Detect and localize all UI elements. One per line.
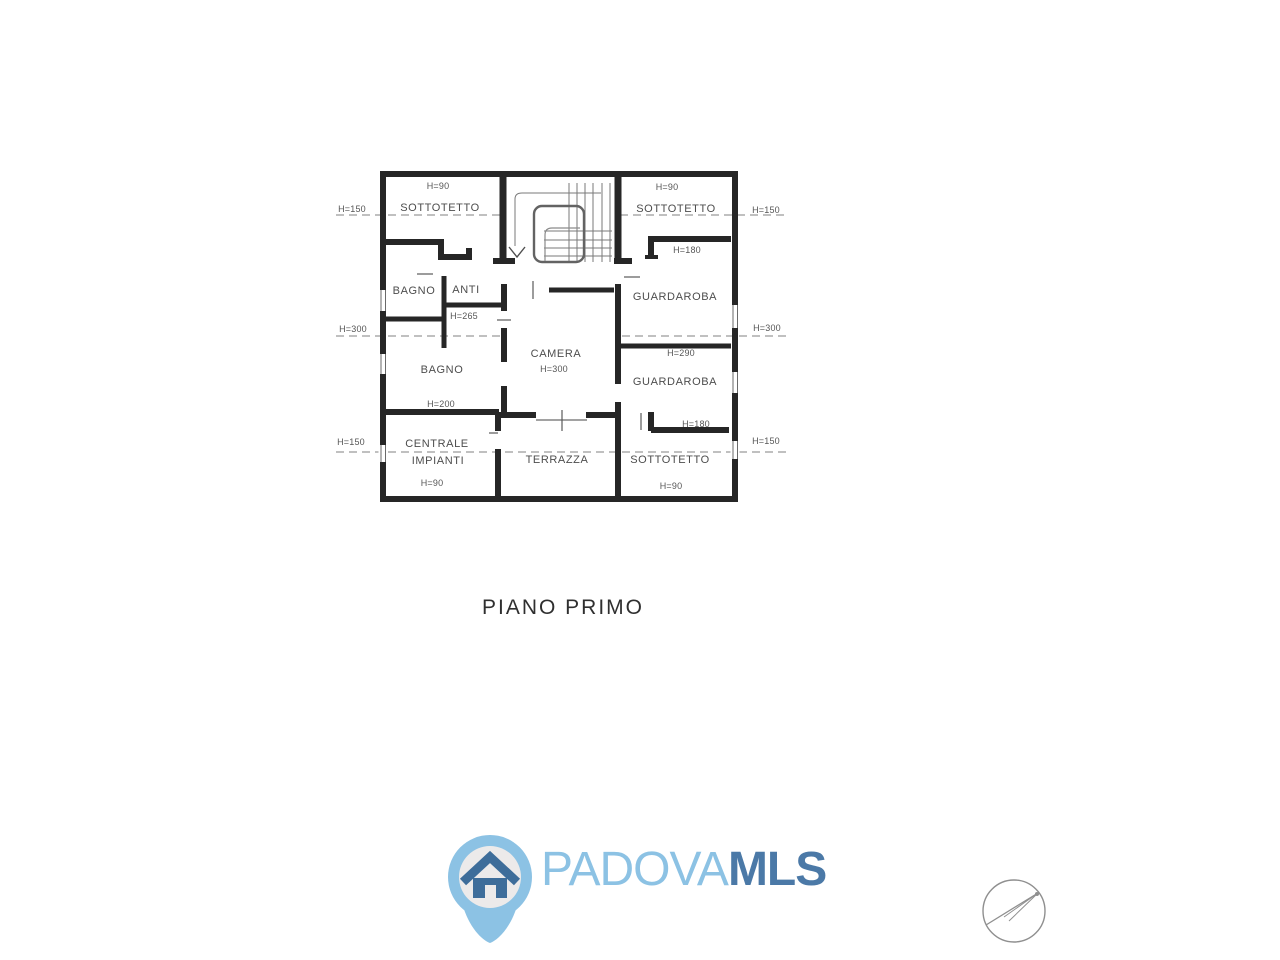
logo-text-light: PADOVA (541, 842, 728, 898)
room-label-camera: CAMERA (531, 348, 582, 360)
plan-title: PIANO PRIMO (482, 596, 644, 620)
wall-height-label-sottotetto-bottom-right: H=180 (682, 419, 710, 429)
section-marker-right-bottom: H=150 (752, 436, 780, 446)
room-label-guardaroba-bottom: GUARDAROBA (633, 376, 717, 388)
height-label-sottotetto-top-left: H=90 (427, 181, 450, 191)
section-marker-right-middle: H=300 (753, 323, 781, 333)
padovamls-logo: PADOVAMLS (541, 842, 826, 898)
wall-label-h200: H=200 (427, 399, 455, 409)
wall-label-h265: H=265 (450, 311, 478, 321)
section-marker-left-top: H=150 (338, 204, 366, 214)
room-label-terrazza: TERRAZZA (526, 454, 589, 466)
room-label-centrale-line1: CENTRALE (405, 438, 468, 450)
section-marker-left-middle: H=300 (339, 324, 367, 334)
room-label-guardaroba-top: GUARDAROBA (633, 291, 717, 303)
wall-height-label-guardaroba-top: H=180 (673, 245, 701, 255)
room-label-bagno-bottom: BAGNO (421, 364, 464, 376)
outer-walls (383, 174, 735, 499)
room-label-sottotetto-bottom-right: SOTTOTETTO (630, 454, 710, 466)
section-marker-right-top: H=150 (752, 205, 780, 215)
north-arrow-compass-icon (983, 880, 1045, 942)
floor-plan-drawing (0, 0, 1280, 960)
height-label-camera: H=300 (540, 364, 568, 374)
wall-height-label-guardaroba-bottom: H=290 (667, 348, 695, 358)
room-label-bagno-top: BAGNO (393, 285, 436, 297)
stairs-down-arrow-icon (509, 247, 525, 257)
chimney-wall (385, 242, 469, 257)
logo-pin-icon (448, 835, 532, 943)
logo-text-bold: MLS (728, 842, 826, 898)
height-label-sottotetto-top-right: H=90 (656, 182, 679, 192)
staircase (509, 183, 612, 262)
room-label-centrale-line2: IMPIANTI (412, 455, 464, 467)
room-label-anti: ANTI (452, 284, 479, 296)
height-label-centrale: H=90 (421, 478, 444, 488)
room-label-sottotetto-top-left: SOTTOTETTO (400, 202, 480, 214)
section-marker-left-bottom: H=150 (337, 437, 365, 447)
floor-plan-page: H=150 H=300 H=150 H=150 H=300 H=150 H=90… (0, 0, 1280, 960)
room-label-sottotetto-top-right: SOTTOTETTO (636, 203, 716, 215)
height-label-sottotetto-bottom-right: H=90 (660, 481, 683, 491)
